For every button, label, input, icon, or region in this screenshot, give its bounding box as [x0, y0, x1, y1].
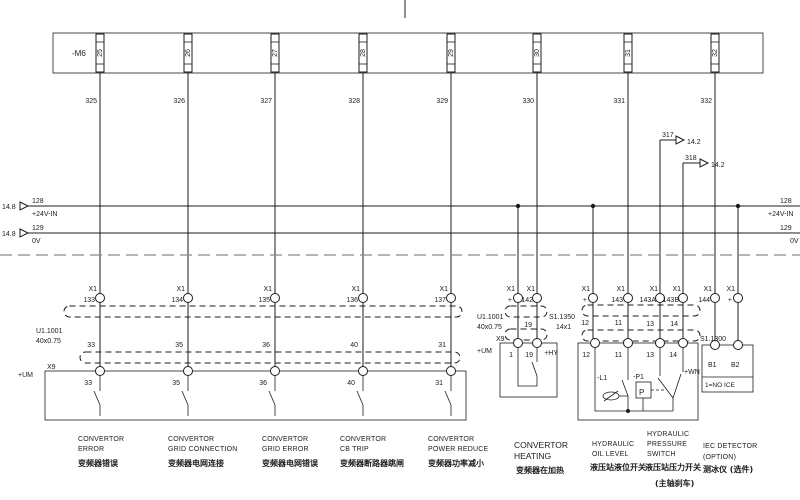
caption-grid-connection: CONVERTOR GRID CONNECTION 变频器电网连接: [168, 436, 238, 468]
ref-dest-sheet: 14.2: [687, 139, 701, 146]
cable-size: 40x0.75: [477, 324, 502, 331]
caption-line: SWITCH: [647, 451, 676, 458]
box-pin: 31: [435, 380, 443, 387]
cable-name: U1.1001: [477, 314, 504, 321]
bus-label: 0V: [32, 238, 41, 245]
x1-name: X1: [526, 286, 535, 293]
x1-name: X1: [263, 286, 272, 293]
terminal-number: 28: [360, 49, 367, 57]
caption-line: HYDRAULIC: [592, 441, 634, 448]
ice-detector-box: +WN B1 B2 1=NO ICE: [684, 341, 753, 393]
core-number: 36: [262, 342, 270, 349]
device-tag: -L1: [597, 375, 607, 382]
core-numbers: 33 35 36 40 31 19 12 11 13 14: [87, 320, 678, 349]
bus-label-right: 0V: [790, 238, 799, 245]
caption-line: CONVERTOR: [340, 436, 386, 443]
box-pin: 40: [347, 380, 355, 387]
caption-zh: 测冰仪 (选件): [703, 464, 753, 474]
x1-pin: 136: [346, 297, 358, 304]
device-note: 1=NO ICE: [705, 382, 735, 389]
x1-name: X1: [506, 286, 515, 293]
core-number: 35: [175, 342, 183, 349]
terminal-strip-label: -M6: [72, 49, 86, 58]
core-number: 19: [524, 322, 532, 329]
ref-wire-number: 317: [662, 132, 674, 139]
box-pin: 33: [84, 380, 92, 387]
ref-dest-sheet: 14.2: [711, 162, 725, 169]
caption-line: GRID CONNECTION: [168, 446, 238, 453]
terminal-number: 27: [272, 49, 279, 57]
x1-pin: 142: [521, 297, 533, 304]
cable-size: 40x0.75: [36, 338, 61, 345]
core-number: 12: [581, 320, 589, 327]
x1-pin: 135: [258, 297, 270, 304]
caption-power-reduce: CONVERTOR POWER REDUCE 变频器功率减小: [428, 436, 488, 468]
caption-zh: 液压站液位开关: [590, 462, 646, 472]
core-number: 33: [87, 342, 95, 349]
wire-number: 328: [348, 98, 360, 105]
hydraulic-box: +HY 12 11 13 14 -L1 -P1 P: [544, 339, 698, 421]
no-contact-symbols: [94, 376, 451, 417]
x1-name: X1: [581, 286, 590, 293]
sheet-ref-arrow: [676, 136, 684, 144]
core-number: 40: [350, 342, 358, 349]
ref-wire-number: 318: [685, 155, 697, 162]
bus-source-ref: 14.8: [2, 204, 16, 211]
caption-zh: 液压站压力开关: [645, 462, 701, 472]
x1-pin: 134: [171, 297, 183, 304]
caption-iec-detector: IEC DETECTOR (OPTION) 测冰仪 (选件): [703, 443, 757, 474]
caption-line: CONVERTOR: [428, 436, 474, 443]
cable-name: S1.1350: [549, 314, 575, 321]
location-label: +HY: [544, 350, 558, 357]
wire-number: 327: [260, 98, 272, 105]
caption-line: IEC DETECTOR: [703, 443, 757, 450]
caption-heating: CONVERTOR HEATING 变频器在加热: [514, 440, 568, 475]
captions: CONVERTOR ERROR 变频器错误 CONVERTOR GRID CON…: [78, 431, 757, 488]
connector-name: X9: [496, 336, 505, 343]
level-switch-l1: -L1: [597, 348, 628, 412]
wire-number: 332: [700, 98, 712, 105]
core-number: 11: [615, 320, 622, 327]
caption-zh: 变频器错误: [78, 458, 119, 468]
caption-line: CB TRIP: [340, 446, 369, 453]
convertor-heating-box: X9 +UM 1 19: [477, 336, 557, 397]
caption-line: HYDRAULIC: [647, 431, 689, 438]
location-label: +WN: [684, 369, 700, 376]
box-pin: 12: [582, 352, 590, 359]
caption-grid-error: CONVERTOR GRID ERROR 变频器电网错误: [262, 436, 319, 468]
terminal-number: 26: [185, 49, 192, 57]
caption-oil-level: HYDRAULIC OIL LEVEL 液压站液位开关: [590, 441, 646, 472]
convertor-signals-box: X9 +UM 33 35 36 40 31: [18, 364, 466, 420]
bus-source-arrow: [20, 229, 28, 237]
terminal-number: 29: [448, 49, 455, 57]
caption-line: PRESSURE: [647, 441, 687, 448]
cable-shields: [64, 305, 700, 363]
caption-cb-trip: CONVERTOR CB TRIP 变频器断路器跳闸: [340, 436, 404, 468]
terminal-number: 32: [712, 49, 719, 57]
box-pin: B1: [708, 362, 717, 369]
core-number: 14: [670, 321, 678, 328]
x1-name: X1: [726, 286, 735, 293]
caption-line: HEATING: [514, 451, 551, 461]
terminal-number: 30: [534, 49, 541, 57]
sheet-ref-arrow: [700, 159, 708, 167]
caption-line: (OPTION): [703, 454, 736, 461]
caption-line: CONVERTOR: [168, 436, 214, 443]
caption-zh: 变频器电网连接: [168, 458, 224, 468]
wire-number: 331: [613, 98, 625, 105]
pressure-symbol: P: [639, 388, 644, 397]
bus-source-ref: 14.8: [2, 231, 16, 238]
cable-size: 14x1: [556, 324, 571, 331]
signal-wires: [100, 73, 740, 367]
bus-number-right: 129: [780, 225, 792, 232]
box-pin: 35: [172, 380, 180, 387]
bus-number: 128: [32, 198, 44, 205]
x1-name: X1: [672, 286, 681, 293]
terminal-strip-m6: -M6 25 26 27 28 29 30 31 32 325 326: [53, 33, 763, 105]
wire-number: 330: [522, 98, 534, 105]
location-label: +UM: [18, 372, 33, 379]
x1-name: X1: [439, 286, 448, 293]
x1-pin: 143A: [640, 297, 657, 304]
x1-pin: +: [728, 297, 732, 304]
x1-terminal-row: X1133 X1134 X1135 X1136 X1137 X1+ X1142 …: [83, 286, 742, 304]
bus-source-arrow: [20, 202, 28, 210]
caption-zh: 变频器在加热: [516, 465, 564, 475]
cross-ref-318: 318 14.2: [683, 155, 725, 294]
cable-name: U1.1001: [36, 328, 63, 335]
m6-terminal-numbers: 25 26 27 28 29 30 31 32: [97, 49, 719, 57]
caption-line: CONVERTOR: [514, 440, 568, 450]
bus-label-right: +24V-IN: [768, 211, 794, 218]
core-number: 13: [646, 321, 654, 328]
wire-number: 329: [436, 98, 448, 105]
connector-name: X9: [47, 364, 56, 371]
box-pin: 36: [259, 380, 267, 387]
x1-labels: X1133 X1134 X1135 X1136 X1137 X1+ X1142 …: [83, 286, 735, 304]
bus-24v: 14.8 128 +24V-IN 128 +24V-IN: [2, 198, 800, 218]
wiring-diagram: -M6 25 26 27 28 29 30 31 32 325 326: [0, 0, 800, 500]
location-label: +UM: [477, 348, 492, 355]
caption-zh: 变频器电网错误: [262, 458, 319, 468]
caption-zh: 变频器功率减小: [428, 458, 484, 468]
box-pin: 14: [669, 352, 677, 359]
caption-line: ERROR: [78, 446, 104, 453]
x1-pin: +: [508, 297, 512, 304]
x1-name: X1: [88, 286, 97, 293]
caption-line: POWER REDUCE: [428, 446, 488, 453]
terminal-number: 25: [97, 49, 104, 57]
x1-pin: 137: [434, 297, 446, 304]
bus-0v: 14.8 129 0V 129 0V: [2, 225, 800, 245]
caption-line: GRID ERROR: [262, 446, 309, 453]
caption-line: CONVERTOR: [262, 436, 308, 443]
box-pin: 19: [525, 352, 533, 359]
device-tag: -P1: [633, 374, 644, 381]
bus-number: 129: [32, 225, 44, 232]
x1-pin: +: [583, 297, 587, 304]
terminal-number: 31: [625, 49, 632, 57]
x1-pin: 133: [83, 297, 95, 304]
wire-numbers: 325 326 327 328 329 330 331 332: [85, 98, 712, 105]
box-pin: 11: [615, 352, 622, 359]
x1-name: X1: [703, 286, 712, 293]
box-pin: 1: [509, 352, 513, 359]
x1-pin: 144: [698, 297, 710, 304]
caption-pressure-switch: HYDRAULIC PRESSURE SWITCH 液压站压力开关 (主轴刹车): [645, 431, 701, 488]
wire-number: 326: [173, 98, 185, 105]
caption-zh: (主轴刹车): [655, 478, 694, 488]
wire-number: 325: [85, 98, 97, 105]
core-number: 31: [438, 342, 446, 349]
caption-convertor-error: CONVERTOR ERROR 变频器错误: [78, 436, 124, 468]
box-pin: 13: [646, 352, 654, 359]
x1-pin: 143B: [663, 297, 680, 304]
box-pin: B2: [731, 362, 740, 369]
x1-name: X1: [351, 286, 360, 293]
x1-name: X1: [649, 286, 658, 293]
schematic-page: -M6 25 26 27 28 29 30 31 32 325 326: [0, 0, 800, 500]
caption-line: CONVERTOR: [78, 436, 124, 443]
caption-line: OIL LEVEL: [592, 451, 629, 458]
caption-zh: 变频器断路器跳闸: [340, 458, 404, 468]
x1-pin: 143: [611, 297, 623, 304]
x1-name: X1: [616, 286, 625, 293]
bus-number-right: 128: [780, 198, 792, 205]
bus-label: +24V-IN: [32, 211, 58, 218]
x1-name: X1: [176, 286, 185, 293]
